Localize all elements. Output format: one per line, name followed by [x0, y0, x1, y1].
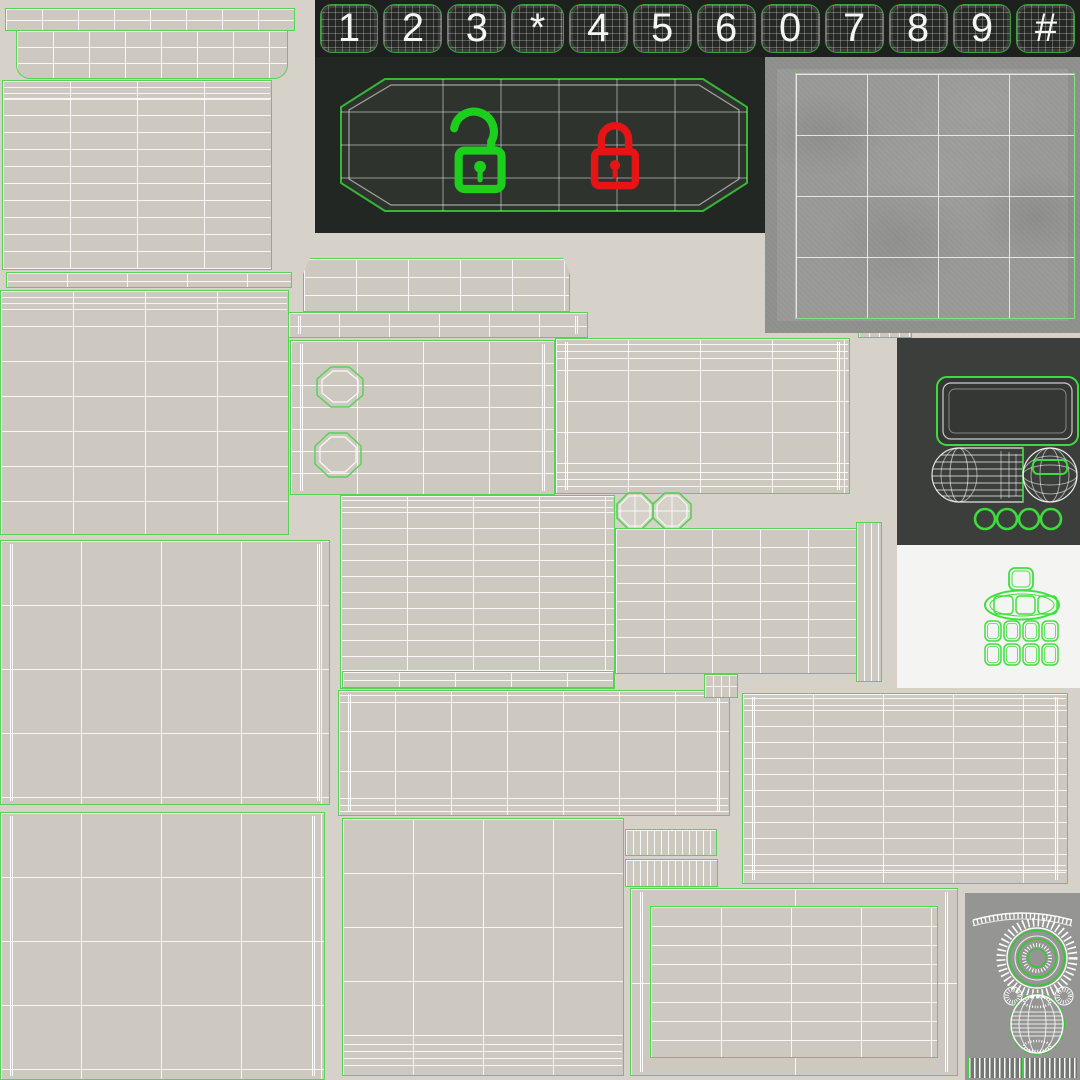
sphere-button-wireframe — [1023, 448, 1077, 502]
uv-patch-stripes-1 — [625, 829, 717, 856]
uv-patch-thin-bar-2 — [342, 671, 614, 688]
uv-patch-nested-outer — [630, 888, 958, 1076]
uv-patch-mid-rect-2 — [340, 495, 615, 689]
key-glyph: 0 — [779, 4, 801, 53]
uv-patch-trapezoid — [303, 258, 570, 312]
uv-patch-stripes-2 — [625, 859, 718, 887]
locked-padlock-icon — [581, 111, 649, 195]
keypad-key-3: 3 — [447, 4, 506, 53]
uv-patch-left-rect-2 — [0, 290, 289, 535]
capsule-button-wireframe — [932, 448, 1023, 502]
key-glyph: 6 — [715, 4, 737, 53]
dark-parts-wireframes — [897, 338, 1080, 545]
concrete-texture-swatch — [765, 57, 1080, 333]
uv-patch-top-bar — [5, 8, 295, 31]
keypad-key-2: 2 — [383, 4, 442, 53]
octagon-hole-icon — [316, 366, 364, 408]
dark-parts-panel — [897, 338, 1080, 545]
white-keys-panel — [897, 545, 1080, 688]
gray-dial-panel — [965, 893, 1080, 1080]
keypad-key-8: 8 — [889, 4, 948, 53]
octagon-knob-icon — [616, 492, 654, 530]
key-glyph: 1 — [338, 4, 360, 53]
key-glyph: 5 — [651, 4, 673, 53]
green-keys-wireframe — [897, 545, 1080, 687]
keypad-key-0: 0 — [761, 4, 820, 53]
concrete-uv-grid — [795, 73, 1075, 319]
uv-patch-left-rect-4 — [0, 812, 325, 1080]
keypad-key-5: 5 — [633, 4, 692, 53]
dial-wireframes — [965, 893, 1080, 1056]
green-rings — [975, 509, 1061, 529]
uv-patch-mid-rect-3 — [615, 528, 857, 674]
uv-texture-atlas: 123*4560789# — [0, 0, 1080, 1080]
uv-patch-octagon-plate — [290, 340, 555, 495]
uv-patch-thin-bar-1 — [6, 272, 292, 288]
key-glyph: 4 — [587, 4, 609, 53]
uv-patch-wide-frame — [338, 690, 730, 816]
key-glyph: * — [530, 4, 546, 53]
lock-display-panel — [315, 57, 775, 233]
key-glyph: 3 — [466, 4, 488, 53]
display-screen — [315, 57, 775, 233]
uv-patch-left-rect-1 — [2, 80, 272, 270]
key-glyph: 8 — [907, 4, 929, 53]
comb-strip-wireframe — [968, 1058, 1078, 1078]
keypad-key-4: 4 — [569, 4, 628, 53]
uv-patch-bottom-mid — [342, 818, 624, 1076]
large-sphere-wireframe — [1009, 994, 1065, 1055]
keypad-key-9: 9 — [953, 4, 1012, 53]
octagon-knob-icon — [652, 492, 692, 530]
keypad-key-6: 6 — [697, 4, 756, 53]
octagon-hole-icon — [314, 432, 362, 478]
dial-ring-wireframe — [1001, 922, 1073, 994]
uv-patch-left-rect-3 — [0, 540, 330, 805]
key-glyph: 9 — [971, 4, 993, 53]
keypad-key-hash: # — [1016, 4, 1075, 53]
keypad-key-7: 7 — [825, 4, 884, 53]
key-glyph: # — [1035, 4, 1057, 53]
key-glyph: 2 — [402, 4, 424, 53]
key-glyph: 7 — [843, 4, 865, 53]
uv-patch-tab — [704, 674, 738, 698]
keypad-strip: 123*4560789# — [315, 0, 1080, 57]
uv-patch-bar-2 — [288, 312, 588, 338]
uv-patch-tub — [16, 30, 288, 79]
keypad-key-1: 1 — [320, 4, 379, 53]
uv-patch-nested-inner — [650, 906, 938, 1058]
unlocked-padlock-icon — [432, 107, 506, 197]
uv-patch-mid-rect-1 — [555, 338, 850, 494]
keypad-key-star: * — [511, 4, 563, 53]
uv-patch-right-rect — [742, 693, 1068, 884]
uv-patch-rail — [856, 522, 882, 682]
